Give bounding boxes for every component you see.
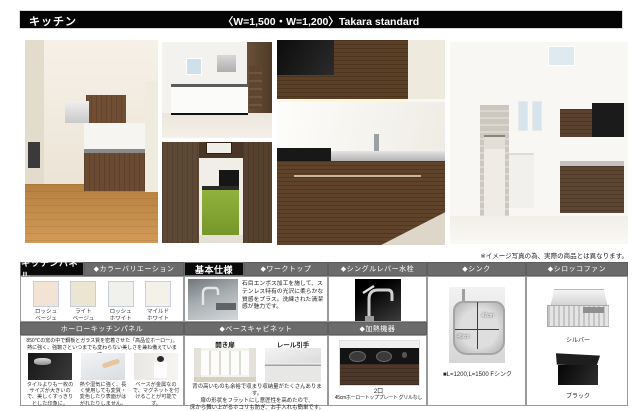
swatch-color-box bbox=[33, 281, 59, 307]
sink-cell: 47cm 45cm ■L=1200,L=1500 Fシンク bbox=[427, 276, 526, 406]
photo-green-cabinet bbox=[202, 190, 239, 234]
photo-backsplash bbox=[277, 102, 445, 151]
faucet-photo bbox=[355, 279, 401, 321]
fan-silver-label: シルバー bbox=[527, 335, 629, 344]
photo-room bbox=[450, 42, 628, 244]
swatch-color-box bbox=[145, 281, 171, 307]
pot-shape bbox=[34, 358, 51, 365]
swatch-color-box bbox=[70, 281, 96, 307]
photo-backsplash bbox=[84, 123, 145, 151]
heater-spec-text: 45cmホーロートッププレート グリルなし bbox=[329, 394, 428, 401]
fan-black-photo bbox=[554, 351, 602, 389]
photo-range-hood bbox=[277, 40, 334, 75]
sink-width-dim: 47cm bbox=[475, 313, 501, 319]
photo-faucet bbox=[374, 134, 379, 150]
photo-upper-cabinet bbox=[86, 95, 126, 123]
photo-wall-right bbox=[243, 142, 272, 243]
swatch-roche-white: ロッシュホワイト bbox=[103, 281, 139, 322]
faucet-icon bbox=[196, 283, 222, 307]
counter-strip bbox=[340, 341, 419, 348]
header-heater: ◆加熱機器 bbox=[328, 322, 427, 335]
photo-tv bbox=[28, 142, 40, 168]
page-subtitle: 〈W=1,500・W=1,200〉Takara standard bbox=[20, 14, 622, 29]
photo-wall-right bbox=[145, 81, 158, 193]
fan-black-label: ブラック bbox=[527, 391, 629, 400]
photo-window-2 bbox=[532, 101, 542, 131]
swatch-light-beige: ライトベージュ bbox=[65, 281, 101, 322]
color-swatch-cell: ロッシュベージュ ライトベージュ ロッシュホワイト マイルドホワイト bbox=[20, 276, 184, 322]
swatch-mild-white: マイルドホワイト bbox=[140, 281, 176, 322]
swatch-roche-beige: ロッシュベージュ bbox=[28, 281, 64, 322]
swatch-color-box bbox=[108, 281, 134, 307]
header-fan: ◆シロッコファン bbox=[526, 262, 628, 276]
feature-caption-3: ベースが金属なので、マグネットを付けることが可能です。 bbox=[132, 382, 180, 407]
photo-niche-shelves bbox=[484, 135, 505, 218]
photo-white-cabinets bbox=[171, 87, 248, 115]
photo-range-hood bbox=[65, 101, 89, 123]
feature-photo-magnet bbox=[134, 353, 178, 380]
rail-handle-photo bbox=[265, 348, 321, 382]
cabinet-front bbox=[340, 364, 419, 385]
heater-cell: 2口 45cmホーロートッププレート グリルなし bbox=[328, 335, 427, 406]
photo-floor bbox=[162, 113, 272, 138]
photo-floor bbox=[450, 216, 628, 244]
photo-wall-left bbox=[162, 142, 199, 243]
photo-base-cabinet bbox=[84, 153, 145, 192]
header-kitchen-panel: キッチンパネル bbox=[20, 262, 84, 276]
sink-photo: 47cm 45cm bbox=[449, 287, 505, 363]
header-worktop: ◆ワークトップ bbox=[244, 262, 328, 276]
kitchen-spec-sheet: キッチン 〈W=1,500・W=1,200〉Takara standard bbox=[0, 0, 640, 411]
photo-kitchen-closeup bbox=[277, 40, 445, 245]
header-basic-spec: 基本仕様 bbox=[184, 262, 244, 276]
photo-range-hood bbox=[592, 103, 624, 137]
photo-floor bbox=[199, 235, 243, 243]
photo-range-hood bbox=[217, 55, 236, 71]
cabinet-floor bbox=[194, 377, 256, 382]
cabinet-description: 背の高いものも余裕で収まり収納量がたくさんあります。 扉の形状をフラットにし意匠… bbox=[188, 384, 326, 411]
fan-controls bbox=[583, 307, 604, 313]
title-bar: キッチン 〈W=1,500・W=1,200〉Takara standard bbox=[20, 11, 622, 28]
worktop-cell: 石目エンボス加工を施して、ステンレス特有の光沢に柔らかな質感をプラス。洗練された… bbox=[184, 276, 328, 322]
arm-shape bbox=[102, 358, 120, 368]
stove-photo bbox=[339, 340, 420, 386]
faucet-cell bbox=[328, 276, 427, 322]
header-enamel-panel: ホーローキッチンパネル bbox=[20, 322, 184, 335]
photo-kitchen-green bbox=[162, 142, 272, 243]
photo-wall bbox=[408, 40, 445, 99]
photo-window-1 bbox=[518, 101, 528, 131]
photo-stove bbox=[277, 148, 331, 161]
fan-black-body bbox=[558, 365, 598, 386]
sink-caption: ■L=1200,L=1500 Fシンク bbox=[428, 369, 527, 378]
photo-kitchen-left bbox=[25, 40, 158, 243]
enamel-panel-cell: 850℃の窯の中で鋼板とガラス質を密着させた「高品位ホーロー」。 熱に強く、強靭… bbox=[20, 335, 184, 406]
photo-window bbox=[186, 58, 202, 74]
photo-hood-black bbox=[219, 170, 239, 186]
base-cabinet-cell: 開き扉 レール引手 背の高いものも余裕で収まり収納量がたくさんあります。 扉の形… bbox=[184, 335, 328, 406]
knob bbox=[402, 352, 408, 357]
feature-photo-panel-size bbox=[28, 353, 72, 380]
header-faucet: ◆シングルレバー水栓 bbox=[328, 262, 427, 276]
photo-floor bbox=[25, 184, 158, 243]
sink-faucet bbox=[462, 289, 464, 301]
feature-photo-durability bbox=[81, 353, 125, 380]
faucet-icon bbox=[355, 279, 401, 321]
header-base-cabinet: ◆ベースキャビネット bbox=[184, 322, 328, 335]
drawer-front bbox=[265, 366, 321, 382]
fan-cell: シルバー ブラック bbox=[526, 276, 628, 406]
worktop-photo bbox=[188, 279, 238, 320]
feature-caption-1: タイルよりも一枚のサイズが大きいので、美しくすっきりとした印象に。 bbox=[26, 382, 74, 407]
dim-arrow-vertical bbox=[477, 302, 478, 349]
storage-bins bbox=[201, 351, 248, 375]
disclaimer-note: ※イメージ写真の為、実際の商品とは異なります。 bbox=[430, 250, 628, 260]
fan-silver-photo bbox=[547, 287, 609, 331]
header-color-variation: ◆カラーバリエーション bbox=[84, 262, 184, 276]
photo-kitchen-white bbox=[162, 42, 272, 138]
open-door-photo bbox=[194, 348, 256, 382]
person-body bbox=[154, 362, 167, 378]
photo-transom bbox=[206, 142, 232, 154]
burner-left bbox=[349, 351, 365, 363]
photo-half-wall bbox=[509, 153, 534, 208]
sink-depth-dim: 45cm bbox=[452, 334, 474, 340]
worktop-description: 石目エンボス加工を施して、ステンレス特有の光沢に柔らかな質感をプラス。洗練された… bbox=[242, 281, 326, 312]
burner-right bbox=[376, 351, 392, 363]
photo-base-cabinet bbox=[560, 166, 624, 212]
photo-skylight bbox=[548, 46, 575, 66]
photo-handle-line bbox=[294, 175, 422, 177]
photo-shelf bbox=[249, 66, 262, 109]
feature-caption-2: 熱や湿気に強く、長く使用しても変質・変色したり表面がはがれたりしません。 bbox=[79, 382, 127, 407]
header-sink: ◆シンク bbox=[427, 262, 526, 276]
sink-basin bbox=[453, 301, 504, 355]
